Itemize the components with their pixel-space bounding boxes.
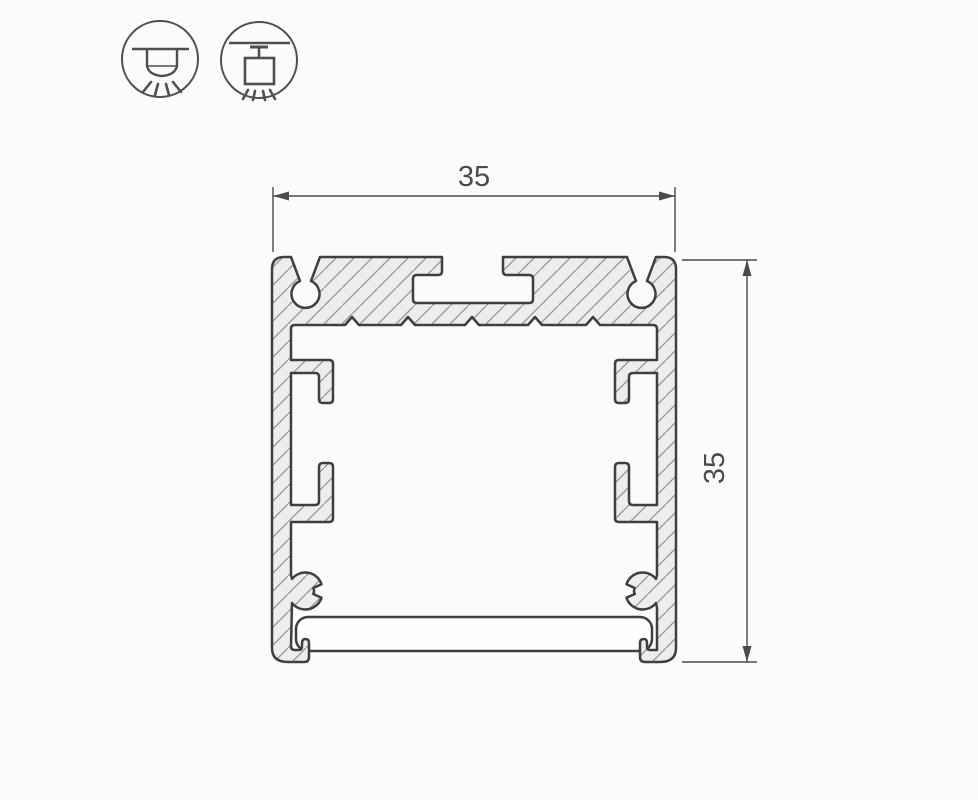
arrowhead-left <box>273 192 289 201</box>
lamp-box <box>245 58 274 84</box>
width-dimension-label: 35 <box>458 161 490 193</box>
icon-circle <box>122 21 198 97</box>
drawing-canvas: 35 35 <box>0 0 978 800</box>
arrowhead-bottom <box>743 646 752 662</box>
arrowhead-top <box>743 260 752 276</box>
pendant-mount-light-icon <box>221 22 297 100</box>
icon-circle <box>221 22 297 98</box>
surface-mount-light-icon <box>122 21 198 97</box>
height-dimension-label: 35 <box>699 452 731 484</box>
arrowhead-right <box>659 192 675 201</box>
profile-drawing: 35 35 <box>0 0 978 800</box>
diffuser-plate <box>296 617 652 651</box>
lamp-body <box>147 49 177 76</box>
width-dimension <box>273 187 675 252</box>
profile-body <box>272 257 676 662</box>
